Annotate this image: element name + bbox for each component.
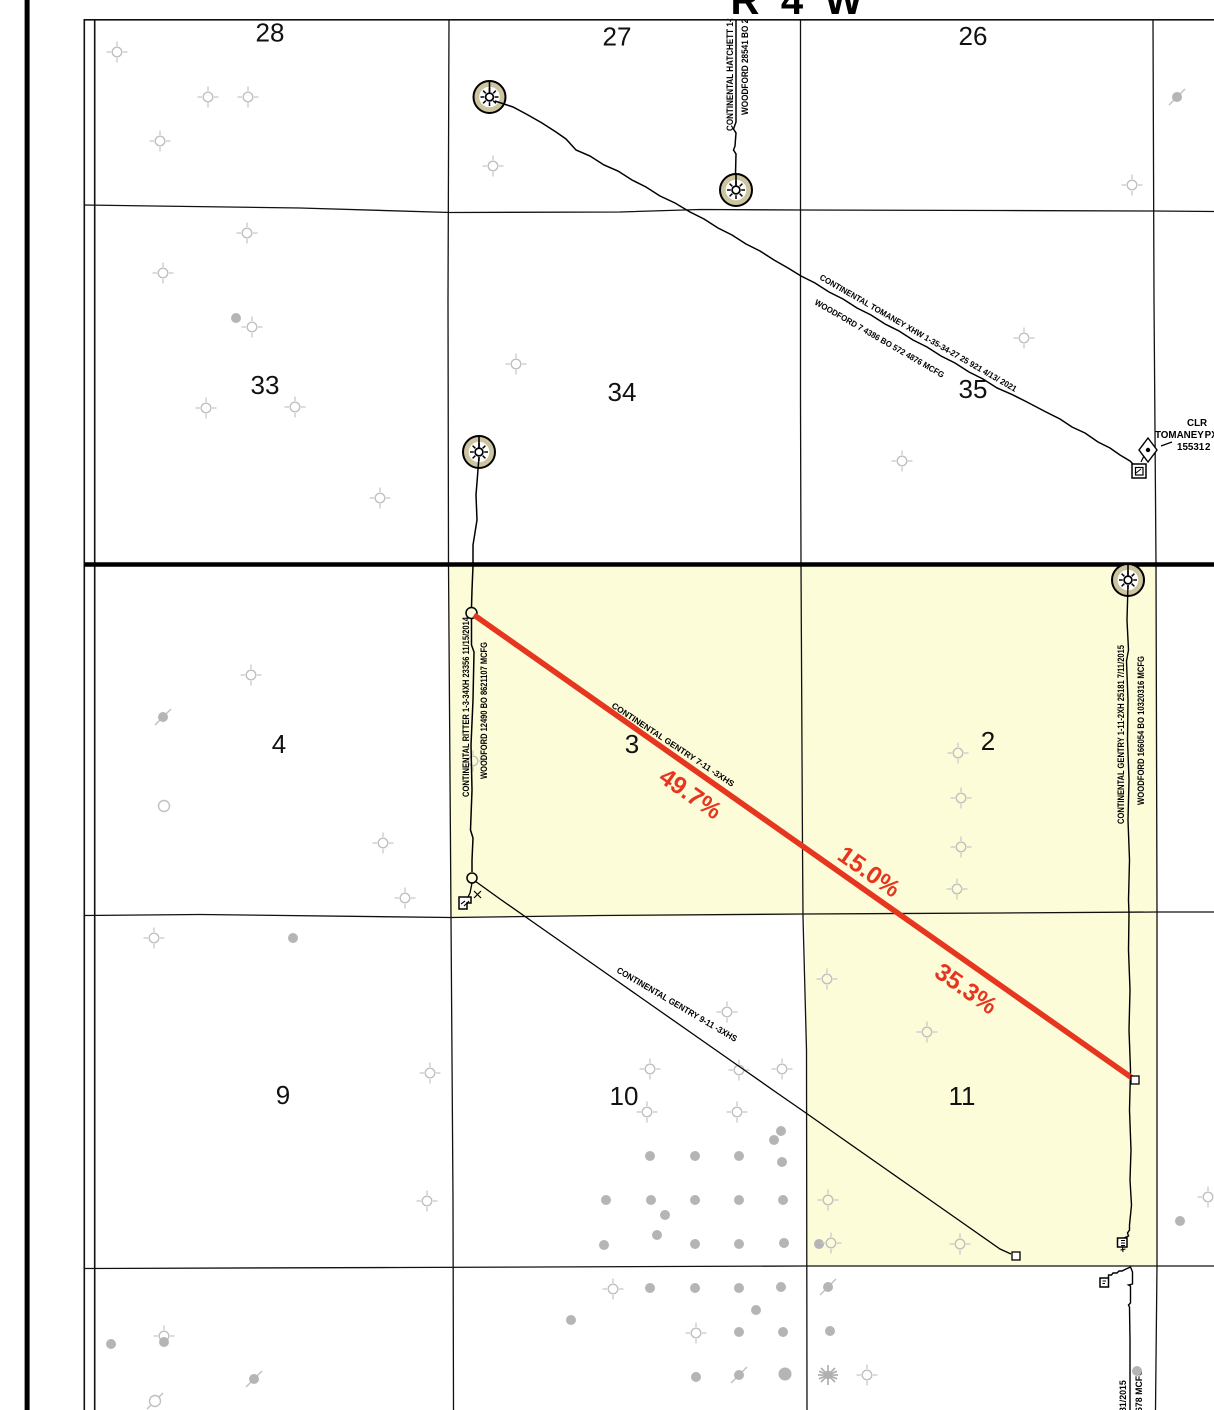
svg-text:3: 3	[625, 729, 639, 759]
svg-text:WOODFORD 166054 BO 10320316 MC: WOODFORD 166054 BO 10320316 MCFG	[1136, 656, 1146, 805]
svg-text:R 4 W: R 4 W	[730, 0, 867, 23]
svg-text:26: 26	[959, 21, 988, 51]
svg-text:27: 27	[603, 22, 632, 52]
svg-text:15531 2: 15531 2	[1177, 442, 1211, 453]
svg-text:4: 4	[272, 729, 286, 759]
svg-text:31/2015: 31/2015	[1118, 1380, 1128, 1410]
svg-text:28: 28	[256, 18, 285, 48]
svg-text:TOMANEY PXH: TOMANEY PXH	[1155, 430, 1214, 441]
svg-text:33: 33	[251, 370, 280, 400]
svg-text:WOODFORD 12490 BO 8621107 MCFG: WOODFORD 12490 BO 8621107 MCFG	[479, 642, 489, 779]
svg-text:CONTINENTAL GENTRY 1-11-2XH 25: CONTINENTAL GENTRY 1-11-2XH 25181 7/11/2…	[1116, 645, 1126, 824]
svg-text:34: 34	[608, 377, 637, 407]
svg-text:11: 11	[949, 1081, 976, 1111]
svg-text:9: 9	[276, 1080, 290, 1110]
svg-text:CLR: CLR	[1187, 418, 1207, 429]
svg-text:2: 2	[981, 726, 995, 756]
svg-text:10: 10	[610, 1081, 639, 1111]
svg-text:CONTINENTAL RITTER 1-3-34XH 23: CONTINENTAL RITTER 1-3-34XH 23356 11/15/…	[461, 617, 471, 797]
